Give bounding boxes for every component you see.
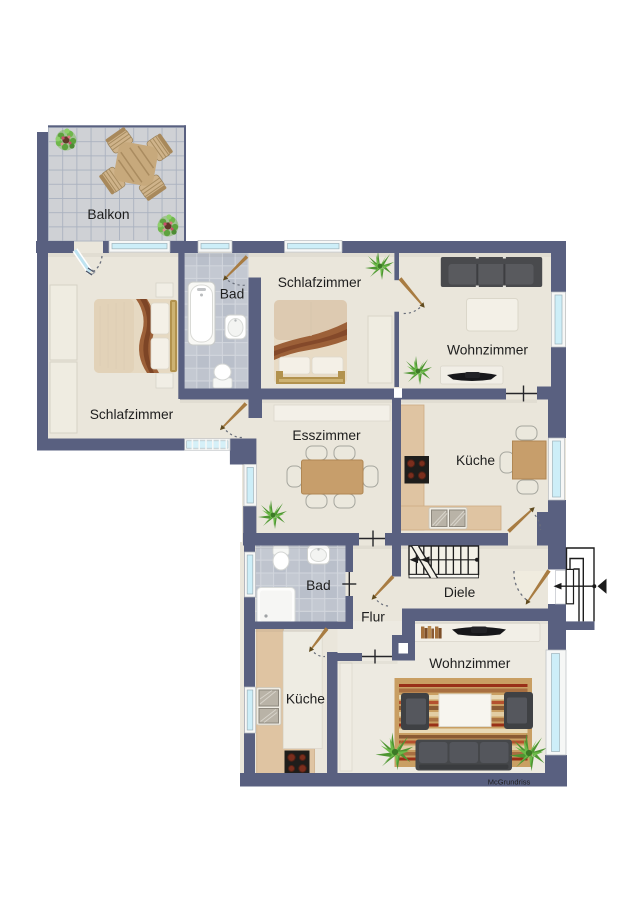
svg-text:Bad: Bad bbox=[220, 287, 245, 302]
svg-text:Küche: Küche bbox=[456, 453, 495, 468]
svg-text:Diele: Diele bbox=[444, 585, 476, 600]
svg-text:Balkon: Balkon bbox=[87, 207, 129, 222]
svg-text:Küche: Küche bbox=[286, 692, 325, 707]
svg-text:McGrundriss: McGrundriss bbox=[488, 778, 531, 787]
svg-text:Wohnzimmer: Wohnzimmer bbox=[429, 656, 510, 671]
svg-text:Schlafzimmer: Schlafzimmer bbox=[90, 407, 174, 422]
svg-text:Wohnzimmer: Wohnzimmer bbox=[447, 343, 528, 358]
svg-text:Flur: Flur bbox=[361, 610, 385, 625]
svg-text:Esszimmer: Esszimmer bbox=[292, 428, 361, 443]
svg-text:Schlafzimmer: Schlafzimmer bbox=[278, 275, 362, 290]
svg-text:Bad: Bad bbox=[306, 578, 331, 593]
